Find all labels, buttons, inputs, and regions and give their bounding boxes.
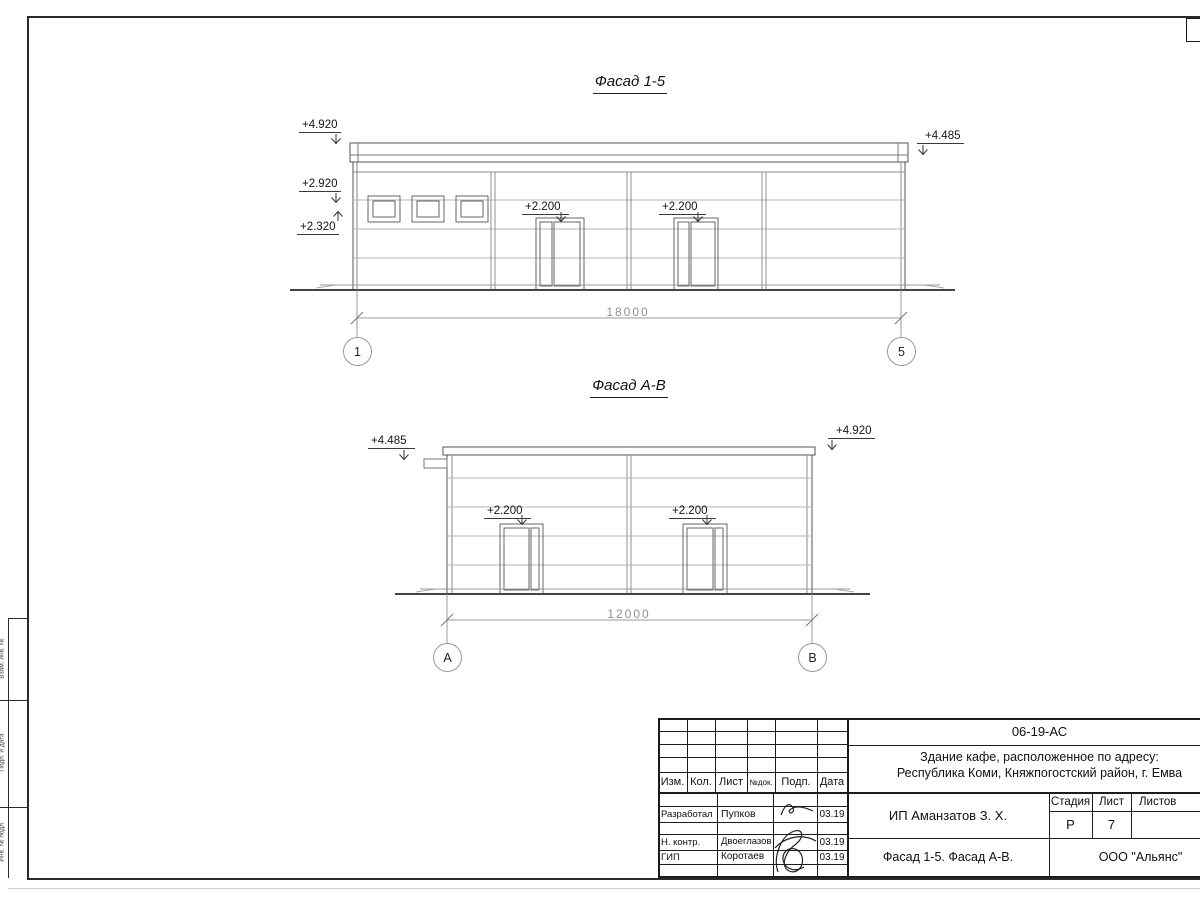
facade-1-5-title-wrap: Фасад 1-5 — [565, 73, 695, 90]
col-header-podp: Подп. — [775, 772, 817, 792]
frame-bottom-border — [27, 878, 1200, 880]
elevation-mark: +2.920 — [299, 178, 341, 192]
elevation-mark: +4.920 — [828, 425, 875, 439]
person-name: Пупков — [721, 808, 756, 820]
col-header-ndok: №док. — [747, 772, 775, 792]
panel-joints — [353, 200, 905, 258]
elevation-arrow-down-icon — [330, 134, 342, 145]
person-name: Двоеглазов — [721, 836, 772, 847]
col-header-izm: Изм. — [658, 772, 687, 792]
signature-scribble — [778, 800, 816, 822]
stage-label: Стадия — [1049, 792, 1092, 811]
company-name: ООО "Альянс" — [1049, 838, 1200, 876]
sign-date: 03.19 — [817, 806, 847, 822]
drawing-sheet: { "colors": { "frame_line": "#1c1c1c", "… — [0, 0, 1200, 900]
door-1 — [500, 524, 543, 594]
elevation-arrow-down-icon — [330, 193, 342, 204]
sheet-title: Фасад 1-5. Фасад А-В. — [847, 838, 1049, 876]
elevation-arrow-down-icon — [826, 440, 838, 451]
pilasters — [491, 172, 766, 290]
frame-top-border — [27, 16, 1200, 18]
frame-left-border — [27, 16, 29, 880]
person-name: Коротаев — [721, 851, 764, 862]
frame-corner-stub — [1186, 18, 1200, 42]
elevation-arrow-up-icon — [332, 210, 344, 221]
frame-strip-label: Взам. инв. № — [0, 624, 6, 694]
elevation-arrow-down-icon — [516, 515, 528, 526]
dimension-value: 12000 — [579, 607, 679, 621]
frame-strip-label: Подп. и дата — [0, 718, 6, 788]
col-header-kol: Кол. — [687, 772, 715, 792]
doc-number: 06-19-АС — [847, 718, 1200, 745]
elevation-arrow-down-icon — [917, 145, 929, 156]
role-label: Разработал — [661, 809, 713, 820]
sheets-label: Листов — [1139, 796, 1176, 808]
elevation-arrow-down-icon — [555, 212, 567, 223]
elevation-mark: +4.920 — [299, 119, 341, 133]
sheet-label: Лист — [1092, 792, 1131, 811]
stage-value: Р — [1049, 811, 1092, 838]
facade-a-b-title: Фасад А-В — [590, 377, 668, 398]
elevation-mark: +4.485 — [368, 435, 415, 449]
elevation-mark: +4.485 — [917, 130, 964, 144]
facade-a-b-title-wrap: Фасад А-В — [564, 377, 694, 394]
elevation-arrow-down-icon — [398, 450, 410, 461]
elevation-arrow-down-icon — [701, 515, 713, 526]
col-header-data: Дата — [817, 772, 847, 792]
role-label: ГИП — [661, 852, 680, 863]
axis-bubble-a: А — [433, 643, 462, 672]
door-2 — [683, 524, 727, 594]
dimension-value: 18000 — [578, 305, 678, 319]
frame-strip-line — [8, 618, 27, 619]
axis-bubble-1: 1 — [343, 337, 372, 366]
client-name: ИП Аманзатов З. Х. — [847, 792, 1049, 838]
paper-edge-bottom — [8, 888, 1200, 889]
ground — [395, 589, 870, 594]
facade-1-5-title: Фасад 1-5 — [593, 73, 667, 94]
role-label: Н. контр. — [661, 837, 700, 848]
sheet-value: 7 — [1092, 811, 1131, 838]
sign-date: 03.19 — [817, 850, 847, 864]
frame-strip-divider — [8, 618, 9, 878]
elevation-arrow-down-icon — [692, 212, 704, 223]
elevation-mark: +2.320 — [297, 221, 339, 235]
axis-bubble-5: 5 — [887, 337, 916, 366]
frame-strip-label: Инв. № подл. — [0, 807, 6, 877]
ground — [290, 285, 955, 290]
title-block: Изм. Кол. Лист №док. Подп. Дата Разработ… — [658, 718, 1200, 878]
col-header-list: Лист — [715, 772, 747, 792]
panel-joints — [447, 478, 812, 565]
facade-a-b-drawing — [380, 420, 900, 680]
signature-scribble — [770, 826, 820, 878]
project-name-line2: Республика Коми, Княжпогостский район, г… — [847, 764, 1200, 782]
axis-bubble-b: В — [798, 643, 827, 672]
sign-date: 03.19 — [817, 834, 847, 850]
pilasters — [627, 455, 631, 594]
frame-strip-line — [0, 700, 27, 701]
